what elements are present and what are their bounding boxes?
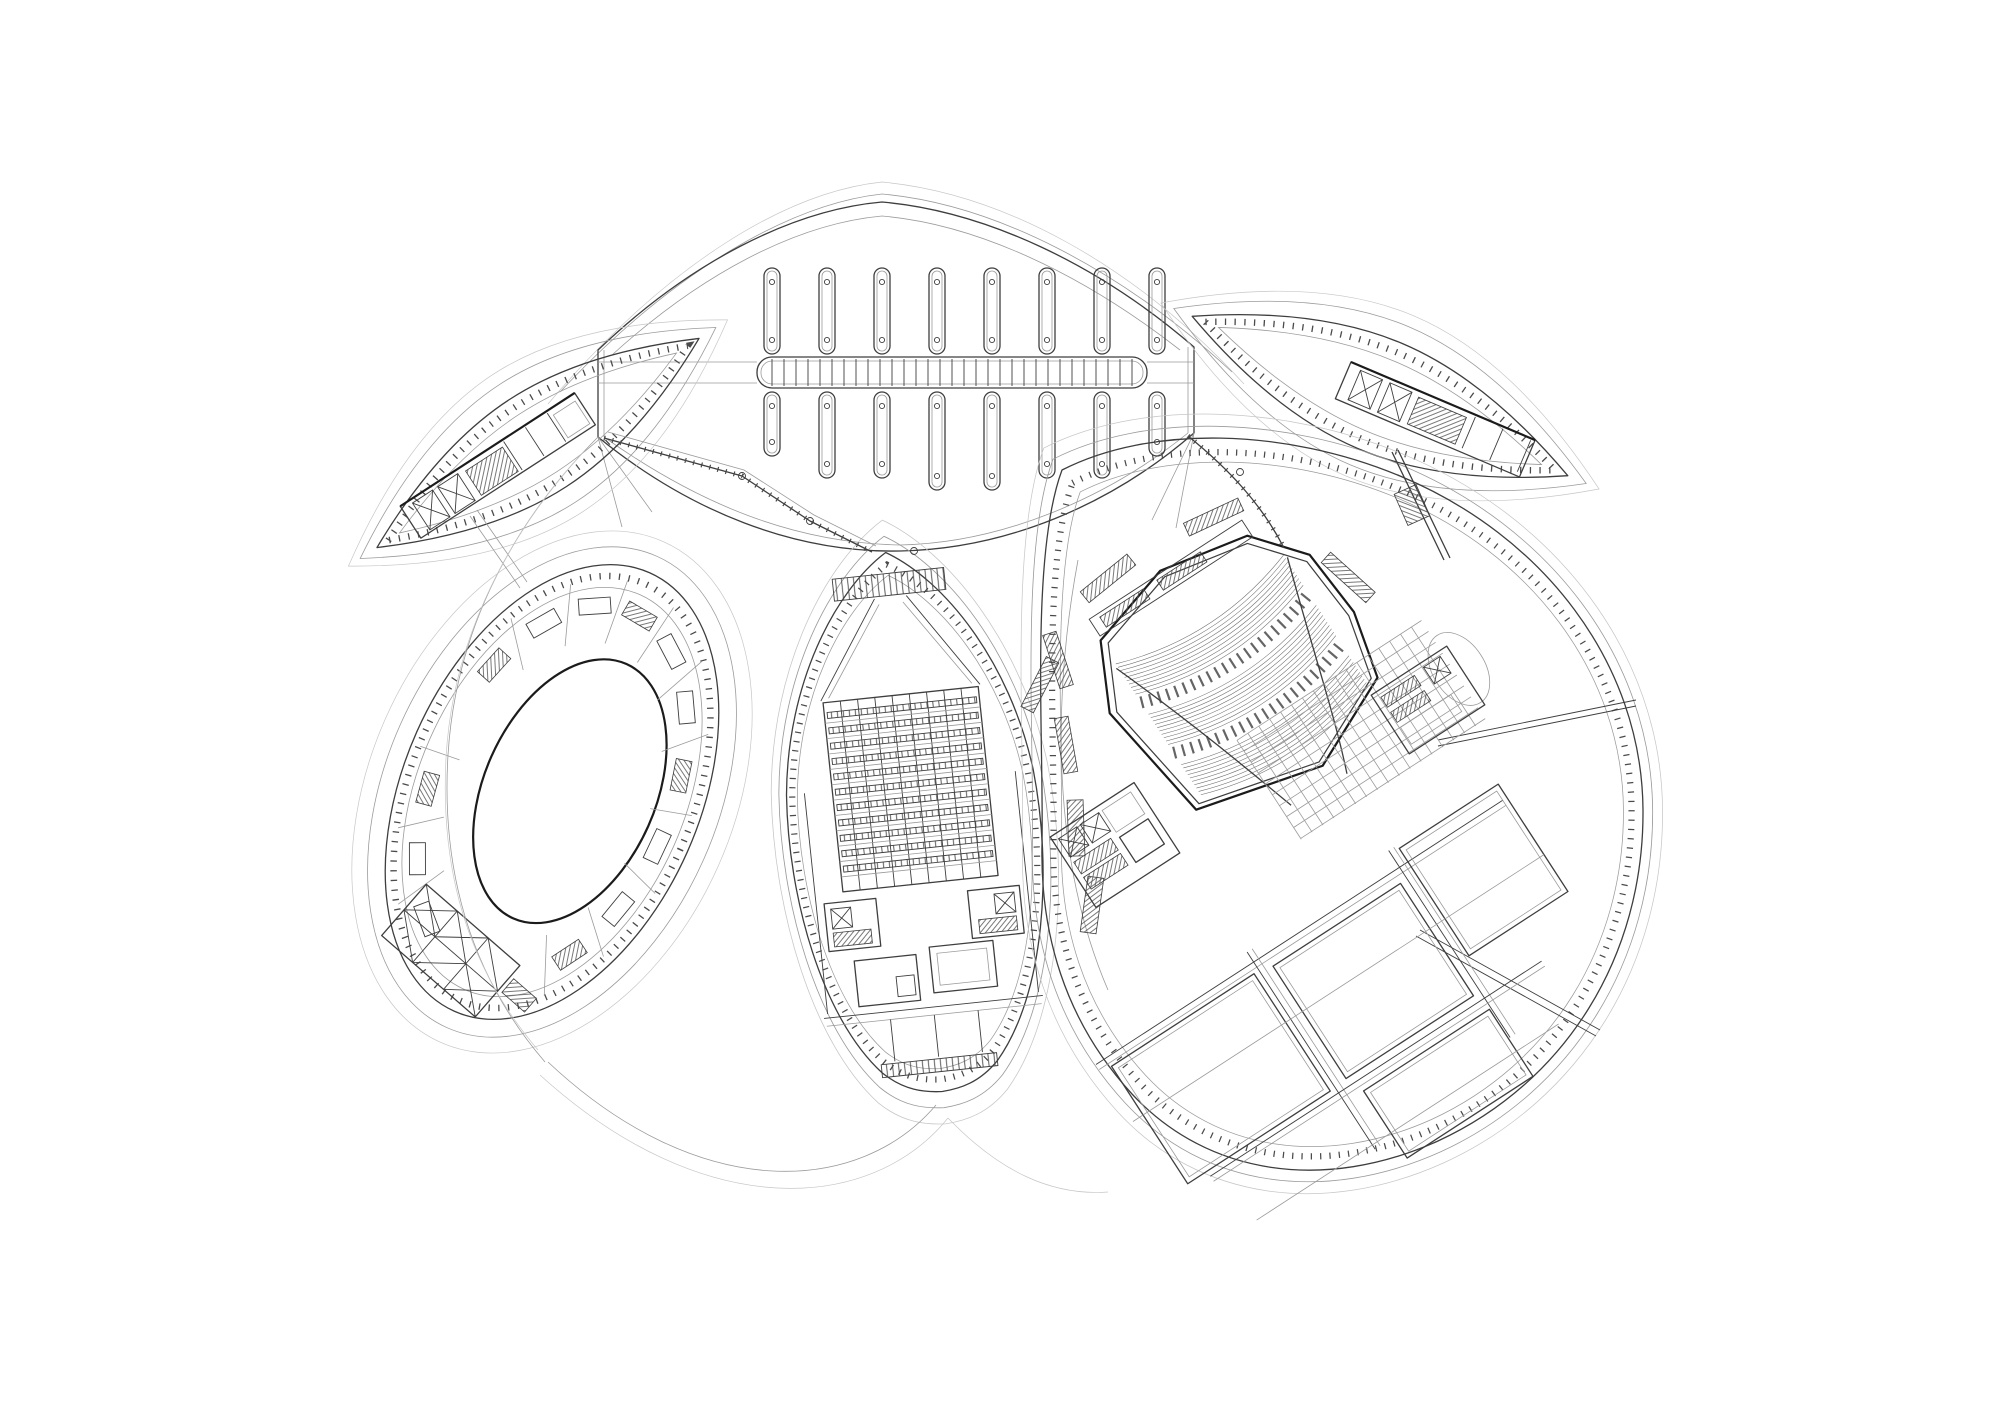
skylight-slot xyxy=(764,392,780,456)
ring-room xyxy=(657,634,686,670)
large-room xyxy=(1111,974,1330,1184)
fan-inner-arc xyxy=(612,216,1180,355)
escalator-walkway-strip xyxy=(598,357,1194,388)
east-corridor xyxy=(1438,700,1636,746)
ring-room xyxy=(578,597,611,615)
skylight-slot xyxy=(1094,392,1110,478)
skylight-slot xyxy=(929,268,945,354)
skylight-slot-rows xyxy=(764,268,1165,490)
stair-run xyxy=(1407,397,1466,444)
east-grand-theater-egg xyxy=(983,414,1663,1272)
stair-core-west xyxy=(824,898,881,951)
site-envelope-outer xyxy=(548,182,1244,404)
leaf-core-slab xyxy=(1335,362,1535,477)
skylight-slot xyxy=(1149,392,1165,456)
entry-bridge-ladder xyxy=(832,568,946,602)
stair-core-east xyxy=(967,885,1024,938)
floor-plan-page xyxy=(0,0,2000,1414)
skylight-slot xyxy=(984,268,1000,354)
boat-interior xyxy=(778,562,1049,1083)
skylight-slot xyxy=(819,392,835,478)
skylight-slot xyxy=(1094,268,1110,354)
skylight-slot xyxy=(984,392,1000,490)
fan-inner-bottom-arc xyxy=(604,433,1188,545)
south-site-path xyxy=(548,1062,936,1171)
skylight-slot xyxy=(1149,268,1165,354)
ring-room xyxy=(670,759,692,794)
stage-grid-hall xyxy=(823,687,998,892)
stair-run xyxy=(466,447,519,495)
ring-room xyxy=(416,771,440,806)
fan-splay-lines xyxy=(598,433,1194,528)
walkway-junction-dots xyxy=(739,469,1244,555)
ring-room xyxy=(677,691,696,724)
courtyard-wall xyxy=(435,629,705,953)
ring-room xyxy=(643,829,671,865)
skylight-slot xyxy=(874,268,890,354)
skylight-slot xyxy=(819,268,835,354)
skylight-slot xyxy=(929,392,945,490)
west-oval-hall xyxy=(274,468,829,1117)
plant-room xyxy=(929,940,997,992)
northwest-leaf-wing xyxy=(304,251,772,635)
rehearsal-room xyxy=(854,955,920,1007)
skylight-slot xyxy=(1039,392,1055,478)
architectural-floor-plan xyxy=(0,0,2000,1414)
oval-facade-rings xyxy=(274,468,829,1117)
boat-facade-rings xyxy=(742,505,1086,1138)
fan-outline xyxy=(598,202,1194,551)
south-gallery-ladder xyxy=(881,1053,998,1078)
leaf-facade-rings xyxy=(304,251,772,635)
skylight-slot xyxy=(764,268,780,354)
ring-room xyxy=(526,608,562,638)
skylight-slot xyxy=(874,392,890,478)
ring-room xyxy=(602,892,635,927)
walkway-node xyxy=(1237,469,1244,476)
skylight-slot xyxy=(1039,268,1055,354)
ring-room xyxy=(409,843,425,875)
ring-room xyxy=(622,601,658,631)
parterre-floor-grid xyxy=(1237,620,1486,839)
ring-room xyxy=(477,648,510,682)
ring-room xyxy=(414,901,440,937)
roof-plaza-fan xyxy=(548,182,1244,551)
central-boat-hall xyxy=(742,505,1086,1138)
